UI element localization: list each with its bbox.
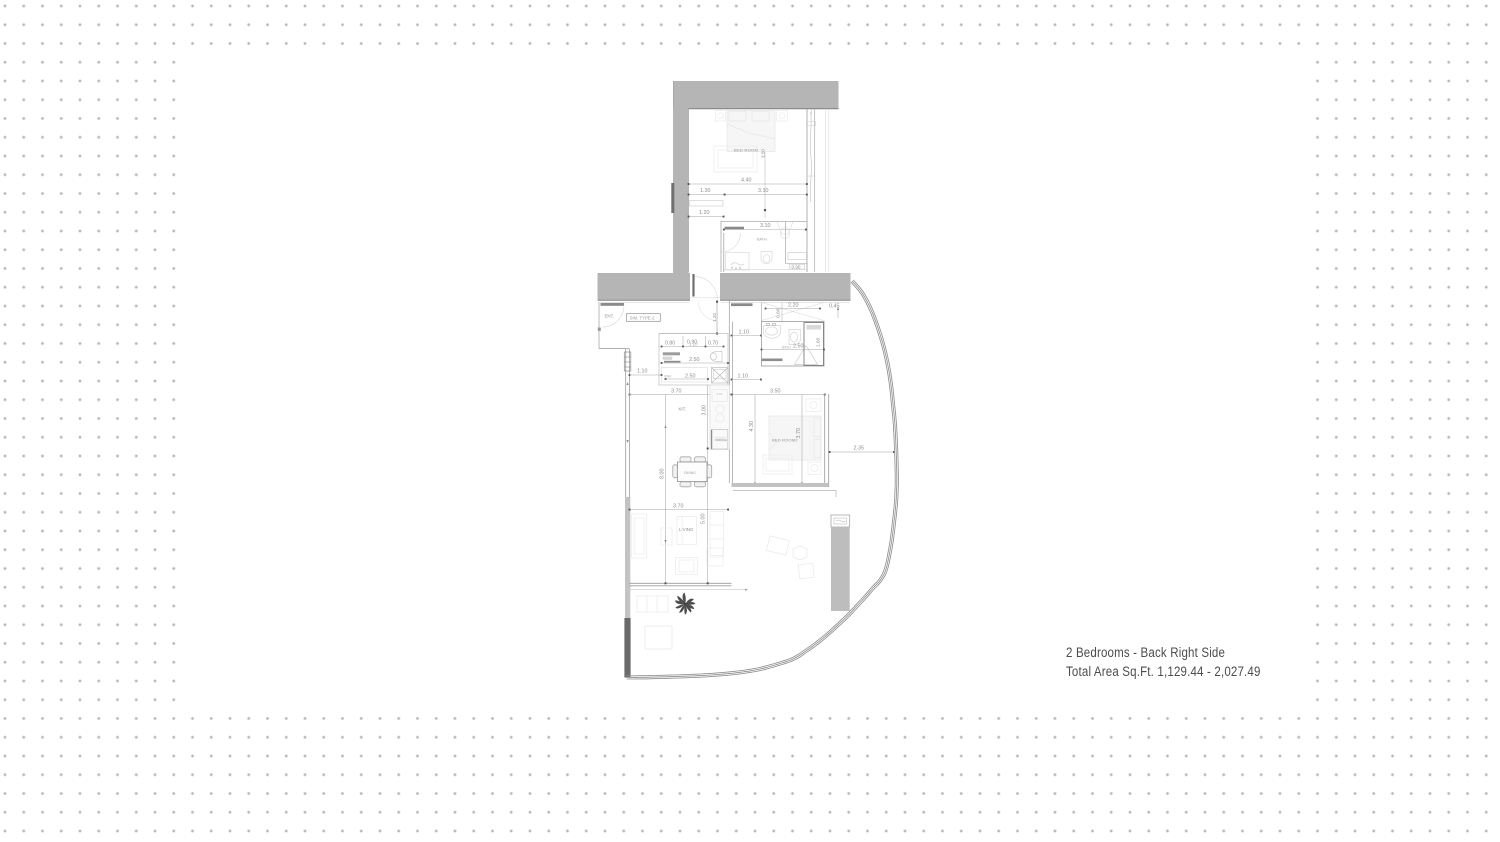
- svg-text:LIVING: LIVING: [679, 527, 694, 532]
- svg-text:2.50: 2.50: [689, 357, 700, 363]
- svg-text:1.20: 1.20: [712, 313, 717, 322]
- svg-text:0.80: 0.80: [665, 340, 675, 346]
- svg-text:BED ROOM: BED ROOM: [734, 148, 758, 153]
- svg-text:0.70: 0.70: [708, 340, 718, 346]
- svg-text:3.10: 3.10: [760, 223, 771, 229]
- svg-text:1.10: 1.10: [637, 369, 648, 375]
- svg-text:1.60: 1.60: [816, 337, 822, 347]
- svg-text:4.40: 4.40: [741, 178, 752, 184]
- svg-text:BED ROOM2: BED ROOM2: [772, 437, 798, 442]
- svg-text:DINING: DINING: [684, 471, 696, 475]
- svg-text:1.10: 1.10: [689, 342, 698, 347]
- svg-text:1.20: 1.20: [699, 210, 710, 216]
- svg-text:3.00: 3.00: [702, 405, 708, 416]
- svg-text:2.35: 2.35: [854, 446, 865, 452]
- svg-text:SIM. TYPE-2: SIM. TYPE-2: [630, 315, 656, 320]
- svg-text:2.50: 2.50: [685, 373, 696, 379]
- svg-text:0.90: 0.90: [792, 265, 801, 270]
- svg-text:1.30: 1.30: [700, 188, 711, 194]
- svg-text:2.50: 2.50: [793, 344, 804, 350]
- svg-text:3.50: 3.50: [770, 388, 781, 394]
- svg-text:1.10: 1.10: [738, 374, 749, 380]
- svg-text:SINK: SINK: [664, 375, 672, 379]
- svg-text:3.70: 3.70: [671, 388, 682, 394]
- svg-text:0.60: 0.60: [776, 308, 782, 318]
- svg-text:3.10: 3.10: [758, 188, 769, 194]
- svg-text:3.70: 3.70: [673, 503, 684, 509]
- svg-text:2.20: 2.20: [788, 303, 799, 309]
- svg-text:ENT.: ENT.: [605, 314, 615, 319]
- svg-text:1.10: 1.10: [739, 329, 750, 335]
- svg-text:0.60: 0.60: [717, 392, 723, 396]
- svg-text:FRIDGE: FRIDGE: [716, 438, 727, 442]
- svg-text:4.30: 4.30: [749, 421, 755, 432]
- svg-text:3.50: 3.50: [761, 149, 766, 158]
- svg-text:BATH: BATH: [757, 238, 767, 242]
- svg-text:BATH: BATH: [782, 346, 791, 350]
- svg-text:KIT.: KIT.: [679, 407, 687, 412]
- svg-text:8.00: 8.00: [660, 469, 666, 480]
- svg-text:5.00: 5.00: [701, 514, 707, 525]
